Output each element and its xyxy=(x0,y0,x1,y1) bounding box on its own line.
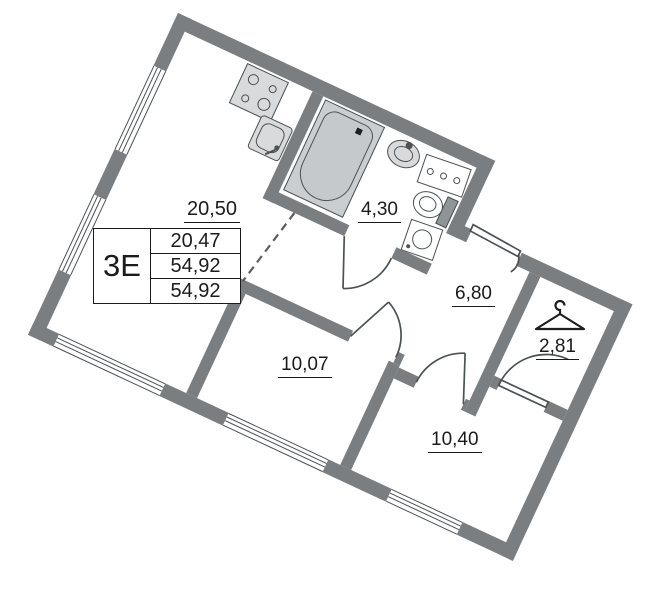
room-area-label-wardrobe: 2,81 xyxy=(536,337,579,360)
unit-area-row: 54,92 xyxy=(151,253,240,278)
entrance-door-leaf xyxy=(469,225,522,257)
unit-area-row: 20,47 xyxy=(151,229,240,253)
room-area-label-room-1: 10,07 xyxy=(278,355,332,378)
door-leaf xyxy=(351,294,389,345)
room-area-label-bathroom: 4,30 xyxy=(358,200,401,223)
room-area-label-hallway: 6,80 xyxy=(452,284,495,307)
door-leaf xyxy=(324,236,363,288)
hanger-icon xyxy=(532,300,588,338)
door-arc xyxy=(369,302,416,357)
door-arc xyxy=(343,245,391,302)
door-arc xyxy=(416,340,465,396)
room-area-label-room-2: 10,40 xyxy=(428,430,482,453)
unit-area-row: 54,92 xyxy=(151,278,240,303)
door-leaf xyxy=(499,380,549,407)
room-area-label-kitchen-living: 20,50 xyxy=(184,199,240,223)
entrance-door-arc xyxy=(511,255,522,273)
unit-type-label: 3Е xyxy=(94,229,151,303)
unit-info-table: 3Е 20,47 54,92 54,92 xyxy=(93,228,241,304)
floor-plan-canvas: 20,50 4,30 6,80 2,81 10,07 10,40 3Е 20,4… xyxy=(0,0,647,600)
dashed-zone-line xyxy=(243,205,295,289)
door-leaf xyxy=(445,353,483,404)
